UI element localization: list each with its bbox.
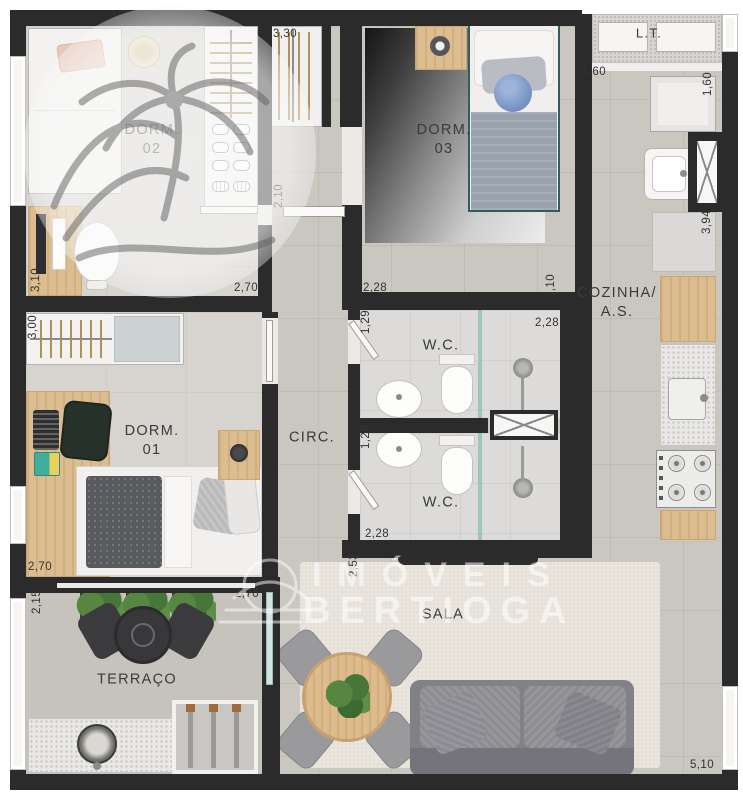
garden-rod: [234, 712, 239, 768]
dim-sala-width: 5,10: [690, 759, 714, 771]
counter-wood-lower: [660, 510, 716, 540]
faucet-icon: [93, 762, 101, 770]
wall-closet-right: [322, 26, 331, 127]
burner-icon: [694, 484, 711, 501]
closet-rail: [30, 338, 112, 340]
terrace-sink: [77, 724, 117, 764]
garden-hook-icon: [232, 704, 241, 712]
round-cushion-icon: [494, 74, 532, 112]
clock-icon: [430, 36, 450, 56]
wall-foyer-dorm03: [340, 26, 362, 127]
counter-wood-upper: [660, 276, 716, 342]
closet-panel: [114, 316, 180, 362]
window-terraco: [10, 598, 26, 770]
room-label-dorm03: DORM. 03: [417, 121, 472, 159]
garden-hook-icon: [209, 704, 218, 712]
room-label-cozinha: COZINHA/ A.S.: [577, 284, 657, 322]
window-sala: [722, 686, 738, 770]
table-plate-icon: [131, 623, 155, 647]
burner-icon: [668, 484, 685, 501]
lamp-icon: [230, 444, 248, 462]
floor-plan: DORM. 02 DORM. 03 DORM. 01 COZINHA/ A.S.…: [0, 0, 743, 800]
sheet-fold: [164, 476, 192, 568]
book-icon: [34, 452, 60, 476]
burner-icon: [668, 455, 685, 472]
duct-shaft: [694, 138, 720, 206]
dim-dorm01-width: 2,70: [28, 561, 52, 573]
shower-glass: [478, 433, 482, 540]
wall-dorm02-bottom: [10, 296, 272, 312]
toilet: [441, 447, 473, 495]
dim-wc-top-depth: 1,29: [360, 310, 372, 334]
lt-vent-icon: [656, 22, 716, 52]
window-dorm01: [10, 486, 26, 544]
shower-head-icon: [513, 478, 533, 498]
door-leaf-dorm01: [266, 320, 273, 382]
duct-shaft: [490, 410, 558, 440]
faucet-icon: [680, 170, 687, 177]
dim-wc-top-width: 2,28: [535, 317, 559, 329]
room-label-circ: CIRC.: [289, 429, 335, 448]
room-label-wc-top: W.C.: [423, 337, 460, 356]
dim-cozinha-width-r: 1,60: [702, 72, 714, 96]
room-label-terraco: TERRAÇO: [97, 671, 177, 690]
shower-rod: [521, 377, 524, 413]
shower-glass: [478, 310, 482, 418]
washer-door: [658, 83, 708, 125]
dim-wc-bottom-depth: 1,29: [360, 425, 372, 449]
wall-dorm03-left: [342, 205, 362, 305]
door-opening-dorm03: [342, 127, 362, 205]
toilet: [441, 366, 473, 414]
shower-rod: [521, 446, 524, 480]
dim-cozinha-depth: 3,94: [701, 210, 713, 234]
dim-dorm01-closet: 3,00: [27, 315, 39, 339]
faucet-icon: [396, 394, 402, 400]
window-lt: [722, 14, 738, 52]
wall-kitchen-left-lower: [560, 292, 592, 558]
chair-dorm01: [59, 400, 113, 463]
toilet-tank: [439, 354, 475, 365]
dim-terraco-depth: 2,15: [31, 590, 43, 614]
dim-wc-bottom-width: 2,28: [365, 528, 389, 540]
garden-rod: [188, 712, 193, 768]
shower-head-icon: [513, 358, 533, 378]
dim-dorm03-depth: 3,10: [545, 274, 557, 298]
room-label-wc-bottom: W.C.: [423, 494, 460, 513]
lt-sill: [592, 62, 722, 71]
palm-tree-icon: [24, 6, 316, 298]
faucet-icon: [396, 446, 402, 452]
room-label-dorm01: DORM. 01: [125, 422, 180, 460]
blanket-dorm03: [471, 112, 557, 210]
toilet-tank: [439, 435, 475, 446]
burner-icon: [694, 455, 711, 472]
blanket-dorm01: [86, 476, 162, 568]
dim-dorm03-width: 2,28: [363, 282, 387, 294]
pillow-icon: [223, 470, 261, 535]
plant-icon: [326, 674, 370, 718]
laptop-icon: [33, 410, 59, 450]
wall-right: [722, 50, 738, 774]
garden-hook-icon: [186, 704, 195, 712]
wall-bottom: [10, 774, 738, 790]
wall-kitchen-left-upper: [575, 14, 592, 292]
garden-rod: [211, 712, 216, 768]
watermark-logo-circle: [24, 6, 316, 298]
faucet-icon: [700, 394, 708, 402]
room-label-lt: L.T.: [636, 26, 662, 43]
watermark-bertioga: BERTIOGA: [303, 590, 576, 633]
stove-knobs-icon: [659, 456, 663, 502]
dim-cozinha-width: 1,60: [582, 66, 606, 78]
